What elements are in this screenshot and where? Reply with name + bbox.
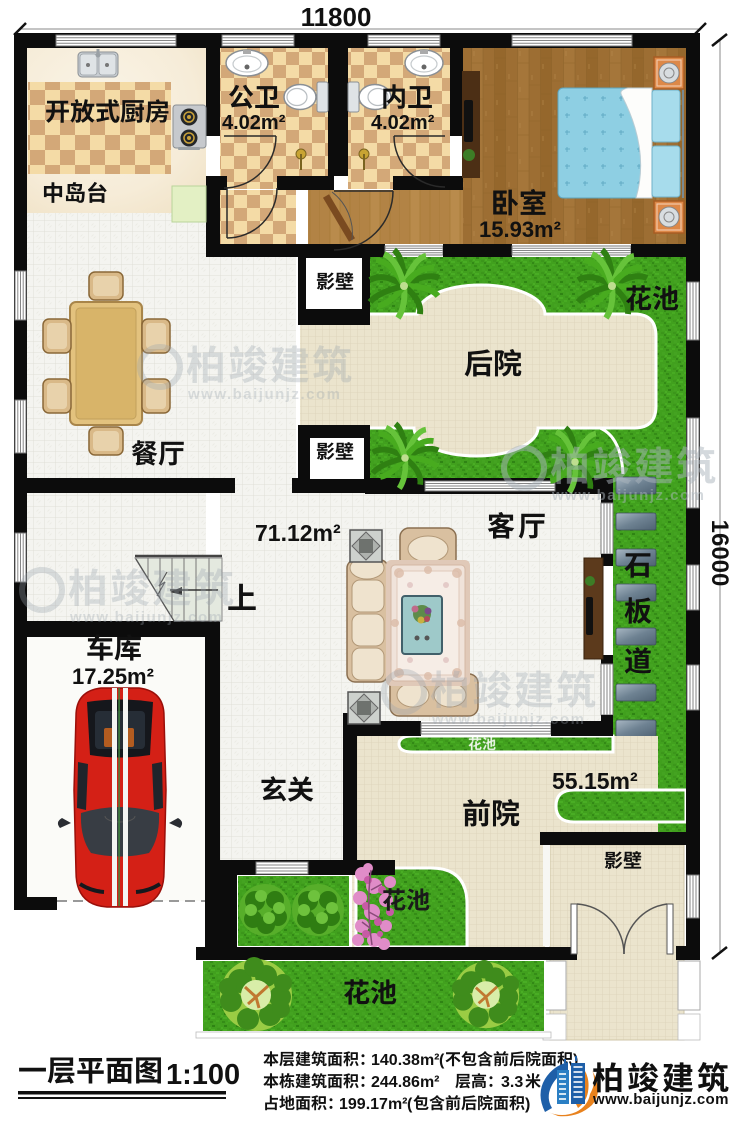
svg-text:www.baijunjz.com: www.baijunjz.com bbox=[187, 386, 341, 403]
svg-text:199.17m²: 199.17m² bbox=[339, 1096, 408, 1113]
svg-text:17.25m²: 17.25m² bbox=[72, 664, 154, 689]
svg-text:4.02m²: 4.02m² bbox=[371, 112, 435, 134]
svg-text:16000: 16000 bbox=[706, 520, 733, 587]
svg-text:(: ( bbox=[407, 1096, 413, 1113]
svg-text:4.02m²: 4.02m² bbox=[222, 112, 286, 134]
svg-text:1:100: 1:100 bbox=[166, 1059, 240, 1091]
svg-text:www.baijunjz.com: www.baijunjz.com bbox=[551, 487, 705, 504]
svg-text:www.baijunjz.com: www.baijunjz.com bbox=[431, 711, 585, 728]
svg-text:55.15m²: 55.15m² bbox=[552, 768, 638, 794]
svg-text:11800: 11800 bbox=[301, 2, 372, 32]
svg-text:www.baijunjz.com: www.baijunjz.com bbox=[69, 609, 223, 626]
svg-text:71.12m²: 71.12m² bbox=[255, 520, 341, 546]
svg-text:): ) bbox=[525, 1096, 530, 1113]
svg-text:(: ( bbox=[439, 1052, 445, 1069]
svg-text:140.38m²: 140.38m² bbox=[371, 1052, 440, 1069]
svg-text:3.3: 3.3 bbox=[501, 1074, 523, 1091]
svg-text:244.86m²: 244.86m² bbox=[371, 1074, 440, 1091]
svg-text:15.93m²: 15.93m² bbox=[479, 217, 561, 242]
svg-text:www.baijunjz.com: www.baijunjz.com bbox=[592, 1091, 729, 1108]
